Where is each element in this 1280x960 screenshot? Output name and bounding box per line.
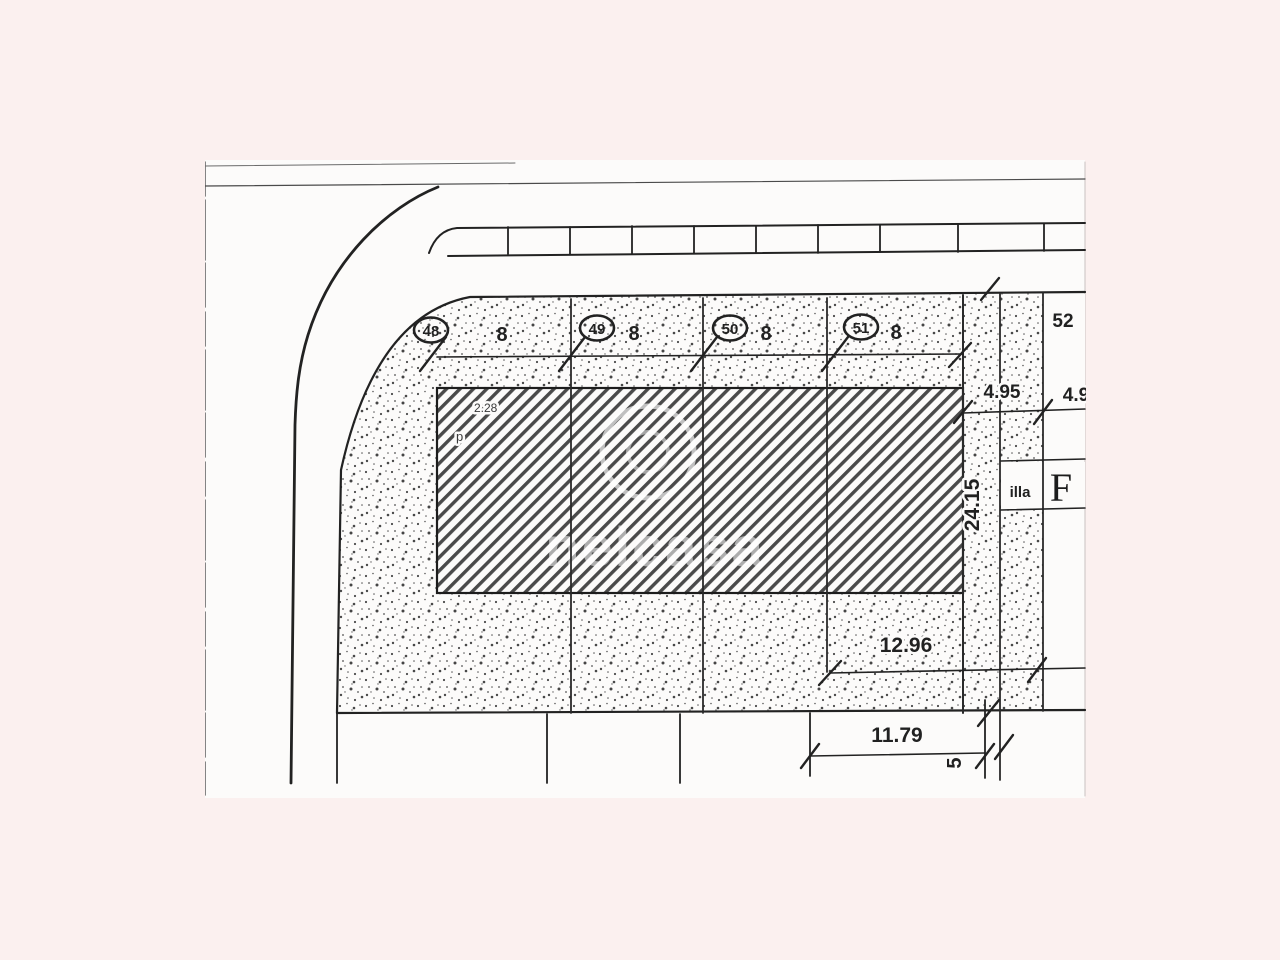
zone-block-label: illa [1010,484,1032,501]
parcel-51-width: 8 [890,322,901,344]
watermark-text: nelcasa [545,515,765,578]
parcel-50-width: 8 [760,323,771,345]
parcel-48-number: 48 [423,323,440,340]
zone-block-letter: F [1050,465,1072,510]
margin-right [1086,0,1280,960]
dim-frontage-52: 4.9 [1063,385,1089,406]
dim-side-gap: 5 [944,757,966,768]
parcel-52-number: 52 [1052,311,1073,332]
site-plan-drawing: nelcasa [0,0,1280,960]
dim-rear-frontage: 11.79 [871,724,922,747]
margin-left [0,0,205,960]
dim-depth: 24.15 [961,478,984,531]
parcel-48-width: 8 [496,324,507,346]
parcel-51-number: 51 [853,320,870,337]
parcel-50-number: 50 [722,321,739,338]
parcel-49-number: 49 [589,321,606,338]
dim-building-offset: 2.28 [474,401,498,415]
dim-rear-width: 12.96 [880,634,933,657]
dim-frontage-right: 4.95 [984,382,1021,403]
building-mark-p: p [456,429,463,444]
parcel-49-width: 8 [628,323,639,345]
scanned-plan-page: nelcasa [0,0,1280,960]
